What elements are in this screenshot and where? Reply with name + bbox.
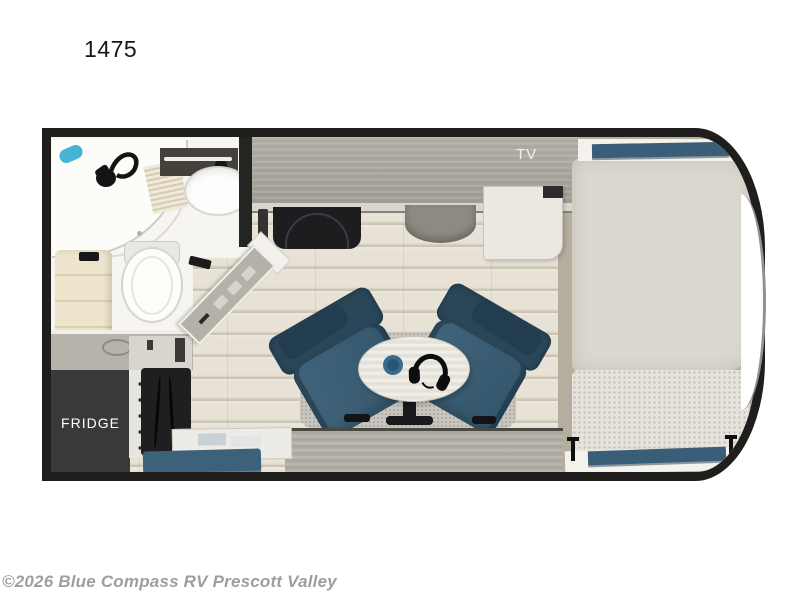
lower-cabinet-edge bbox=[285, 428, 563, 431]
bench-handle bbox=[79, 252, 99, 261]
storage-bench-cushion bbox=[143, 448, 262, 472]
bathroom-wall bbox=[239, 137, 252, 247]
model-number: 1475 bbox=[84, 36, 137, 63]
door-window bbox=[241, 266, 257, 282]
wardrobe-bench bbox=[55, 250, 112, 335]
side-cabinet-edge bbox=[51, 330, 193, 334]
cooktop bbox=[273, 207, 361, 249]
kitchen-sink bbox=[405, 205, 476, 243]
side-cabinet-handle bbox=[102, 339, 132, 356]
tv-bracket bbox=[543, 186, 563, 198]
toilet-seat bbox=[131, 256, 173, 315]
fridge-panel: FRIDGE bbox=[51, 370, 130, 472]
door-handle bbox=[198, 313, 209, 324]
oven-door-seam bbox=[153, 375, 161, 449]
bed-mattress bbox=[572, 158, 753, 372]
toilet bbox=[121, 247, 183, 323]
door-window-2 bbox=[227, 280, 243, 296]
watermark-copyright: ©2026 Blue Compass RV Prescott Valley bbox=[2, 572, 337, 592]
floorplan-interior: TV FRIDGE bbox=[51, 137, 756, 472]
chair-footrest-handle-right bbox=[472, 416, 496, 424]
door-window-3 bbox=[213, 294, 229, 310]
bed-mattress-foot bbox=[572, 370, 750, 452]
showerhead-icon bbox=[93, 143, 145, 193]
tv-label: TV bbox=[516, 146, 537, 163]
table-leg-left bbox=[567, 437, 579, 461]
bed-bolster-top bbox=[592, 142, 729, 158]
mug bbox=[383, 355, 403, 375]
cabinet-mark-2 bbox=[175, 338, 185, 362]
appliance-cabinet bbox=[129, 336, 192, 370]
mug-inside bbox=[387, 359, 399, 371]
placemat-2 bbox=[231, 435, 261, 447]
floorplan-page: 1475 bbox=[0, 0, 800, 600]
cooktop-grate bbox=[285, 213, 349, 249]
placemat bbox=[198, 433, 226, 445]
chair-footrest-handle-left bbox=[344, 414, 370, 422]
shower-drain bbox=[137, 231, 142, 236]
lower-cabinet-run bbox=[285, 428, 563, 472]
cabinet-mark bbox=[147, 340, 153, 350]
table-leg-right bbox=[725, 435, 737, 459]
floorplan: TV FRIDGE bbox=[42, 128, 765, 481]
